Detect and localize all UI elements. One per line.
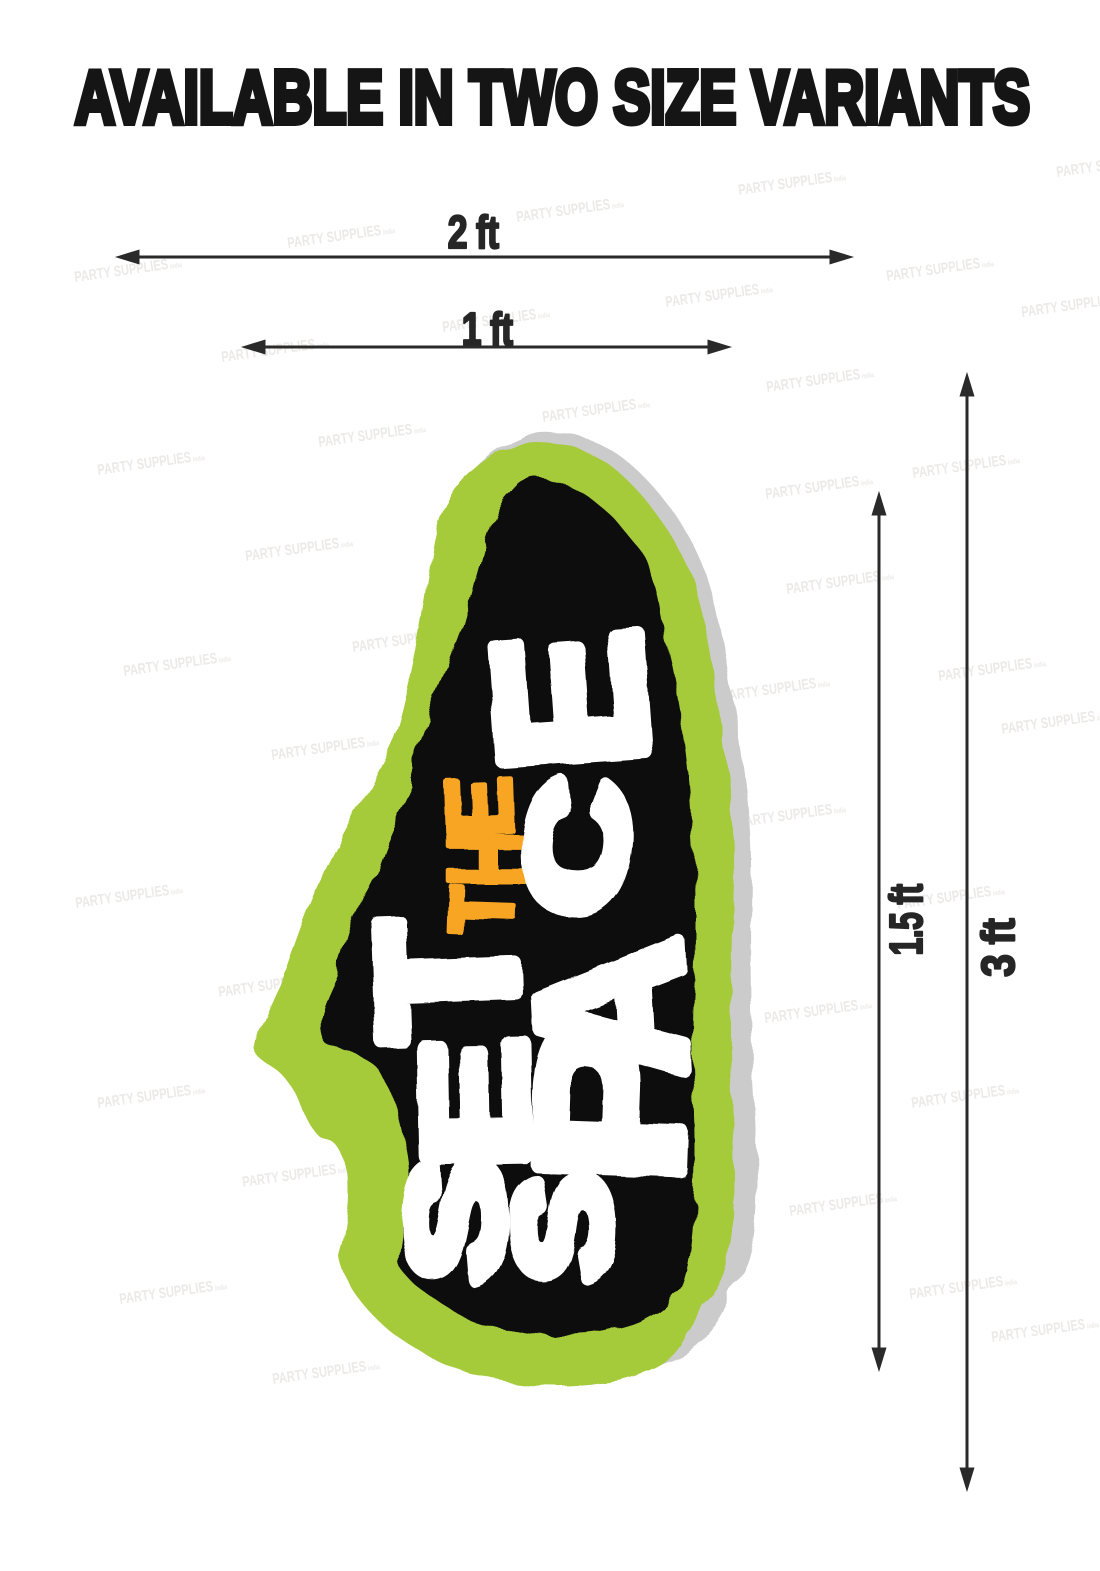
svg-text:C: C xyxy=(494,772,660,924)
svg-text:3 ft: 3 ft xyxy=(974,919,1025,977)
svg-text:1.5 ft: 1.5 ft xyxy=(881,884,932,955)
svg-text:E: E xyxy=(449,622,691,779)
svg-text:A: A xyxy=(490,934,730,1086)
svg-text:1 ft: 1 ft xyxy=(462,304,514,355)
svg-text:S: S xyxy=(488,1171,640,1284)
svg-text:2 ft: 2 ft xyxy=(448,207,500,258)
